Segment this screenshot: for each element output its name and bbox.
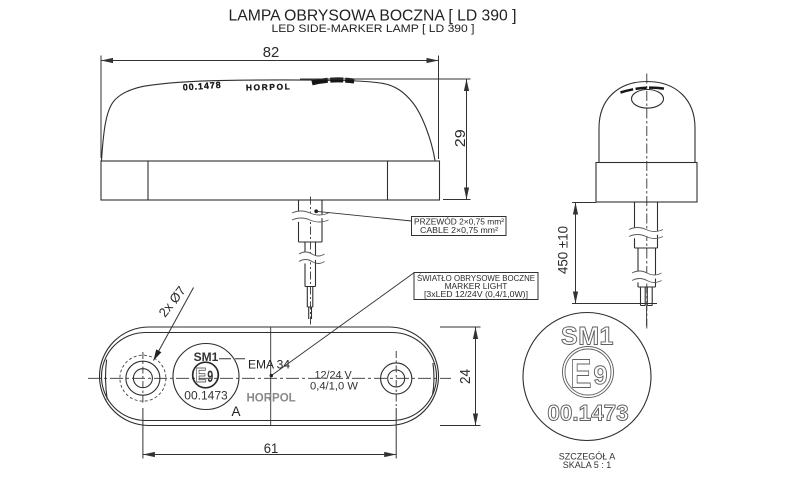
svg-text:E: E xyxy=(196,365,207,387)
svg-text:00.1473: 00.1473 xyxy=(184,389,228,403)
svg-text:HORPOL: HORPOL xyxy=(246,81,292,92)
svg-text:29: 29 xyxy=(452,129,469,147)
svg-text:CABLE 2×0,75 mm²: CABLE 2×0,75 mm² xyxy=(420,225,498,235)
svg-text:450 ±10: 450 ±10 xyxy=(556,226,571,274)
svg-text:SM1: SM1 xyxy=(194,350,219,364)
svg-text:00.1473: 00.1473 xyxy=(547,401,628,426)
svg-text:24: 24 xyxy=(457,369,474,384)
svg-text:[3xLED 12/24V (0,4/1,0W)]: [3xLED 12/24V (0,4/1,0W)] xyxy=(424,289,528,299)
svg-text:A: A xyxy=(232,404,241,419)
svg-text:HORPOL: HORPOL xyxy=(247,393,296,405)
svg-text:EMA 34: EMA 34 xyxy=(248,358,290,372)
svg-text:SKALA 5 : 1: SKALA 5 : 1 xyxy=(563,460,612,470)
svg-text:82: 82 xyxy=(263,45,280,61)
svg-text:LED SIDE-MARKER LAMP [ LD 390: LED SIDE-MARKER LAMP [ LD 390 ] xyxy=(272,23,475,35)
svg-text:61: 61 xyxy=(264,440,279,456)
svg-text:E: E xyxy=(571,351,592,397)
svg-text:0,4/1,0 W: 0,4/1,0 W xyxy=(310,381,358,393)
svg-text:9: 9 xyxy=(594,362,608,390)
svg-text:9: 9 xyxy=(207,368,213,386)
